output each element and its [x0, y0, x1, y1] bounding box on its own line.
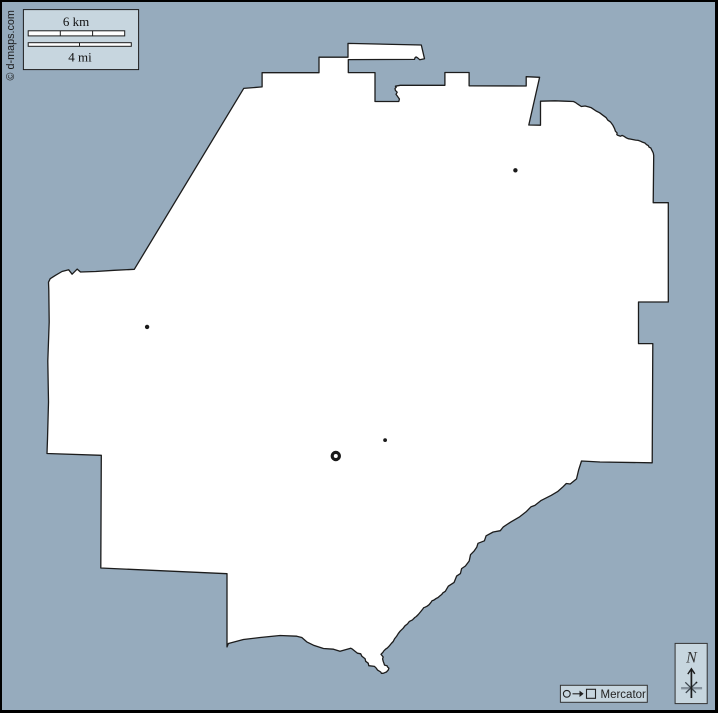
svg-text:6 km: 6 km: [63, 14, 89, 29]
svg-text:4 mi: 4 mi: [68, 49, 92, 64]
svg-text:Mercator: Mercator: [601, 689, 647, 701]
svg-text:N: N: [685, 650, 698, 667]
svg-text:© d-maps.com: © d-maps.com: [5, 10, 17, 80]
